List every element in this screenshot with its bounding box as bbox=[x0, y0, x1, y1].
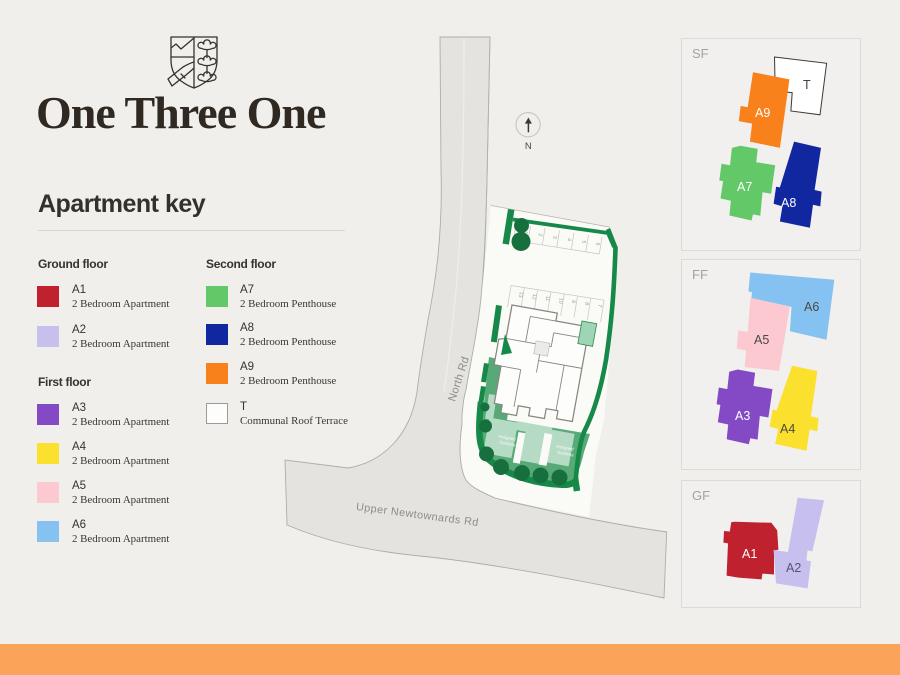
svg-text:A4: A4 bbox=[780, 422, 795, 436]
svg-text:N: N bbox=[525, 141, 532, 152]
svg-text:10: 10 bbox=[557, 297, 564, 304]
svg-text:A8: A8 bbox=[781, 196, 796, 210]
svg-text:A3: A3 bbox=[735, 409, 750, 423]
svg-text:A9: A9 bbox=[755, 106, 770, 120]
svg-text:A6: A6 bbox=[804, 300, 819, 314]
svg-text:A7: A7 bbox=[737, 180, 752, 194]
svg-text:11: 11 bbox=[544, 295, 551, 301]
svg-text:A5: A5 bbox=[754, 333, 769, 347]
svg-text:T: T bbox=[803, 78, 811, 92]
svg-text:12: 12 bbox=[530, 293, 537, 300]
svg-text:A2: A2 bbox=[786, 561, 801, 575]
svg-text:A1: A1 bbox=[742, 547, 757, 561]
svg-text:13: 13 bbox=[517, 291, 524, 298]
